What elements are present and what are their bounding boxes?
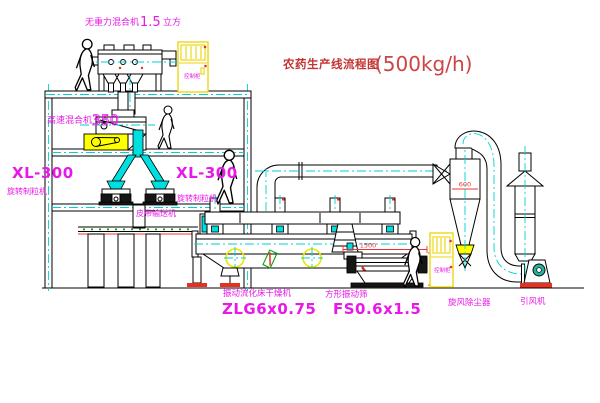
mixer-motor-box bbox=[84, 134, 128, 150]
control-cabinet-right: 控制柜 bbox=[430, 233, 453, 287]
title-capacity: (500kg/h) bbox=[375, 52, 472, 76]
sieve-length-dim: 1500 bbox=[360, 242, 377, 250]
control-cabinet-top: 控制柜 bbox=[178, 42, 208, 92]
sieve-model-label: FS0.6x1.5 bbox=[333, 300, 421, 318]
cabinet-right-label: 控制柜 bbox=[434, 266, 451, 274]
high-speed-mixer-size: 350 bbox=[92, 113, 119, 129]
granulator-left bbox=[99, 181, 133, 205]
fan-base bbox=[520, 283, 552, 288]
worker-on-roof bbox=[75, 39, 94, 91]
dryer-model-label: ZLG6x0.75 bbox=[222, 300, 316, 318]
dryer-name-label: 振动流化床干燥机 bbox=[223, 288, 292, 299]
mixer-discharge-chute bbox=[133, 130, 143, 157]
worker-floor-2 bbox=[158, 106, 174, 149]
granulator-model-right: XL-300 bbox=[176, 164, 238, 182]
dryer-bellows bbox=[207, 224, 398, 234]
cabinet-top-label: 控制柜 bbox=[184, 72, 201, 80]
gravity-mixer-label: 无重力混合机 bbox=[85, 16, 139, 28]
gravity-free-mixer bbox=[84, 45, 180, 114]
granulator-right bbox=[143, 181, 177, 205]
process-flow-diagram: 控制柜 bbox=[0, 0, 600, 403]
belt-conveyor bbox=[78, 227, 198, 287]
y-splitter-chute bbox=[112, 155, 164, 181]
title-text: 农药生产线流程图 bbox=[282, 57, 379, 71]
sieve-name-label: 方形振动筛 bbox=[325, 289, 368, 300]
cyclone-label: 旋风除尘器 bbox=[448, 297, 491, 308]
belt-conveyor-label: 皮带输送机 bbox=[136, 208, 176, 218]
granulator-name-left: 旋转制粒机 bbox=[7, 186, 47, 196]
granulator-model-left: XL-300 bbox=[12, 164, 74, 182]
drawing-title: 农药生产线流程图 (500kg/h) bbox=[282, 52, 472, 76]
gravity-mixer-unit: 立方 bbox=[163, 16, 181, 28]
granulator-name-right: 旋转制粒机 bbox=[177, 193, 217, 203]
cad-drawing-canvas: 控制柜 bbox=[0, 0, 600, 403]
fan-label: 引风机 bbox=[520, 296, 546, 307]
gravity-mixer-size: 1.5 bbox=[140, 15, 161, 30]
high-speed-mixer-label: 高速混合机 bbox=[47, 114, 92, 126]
